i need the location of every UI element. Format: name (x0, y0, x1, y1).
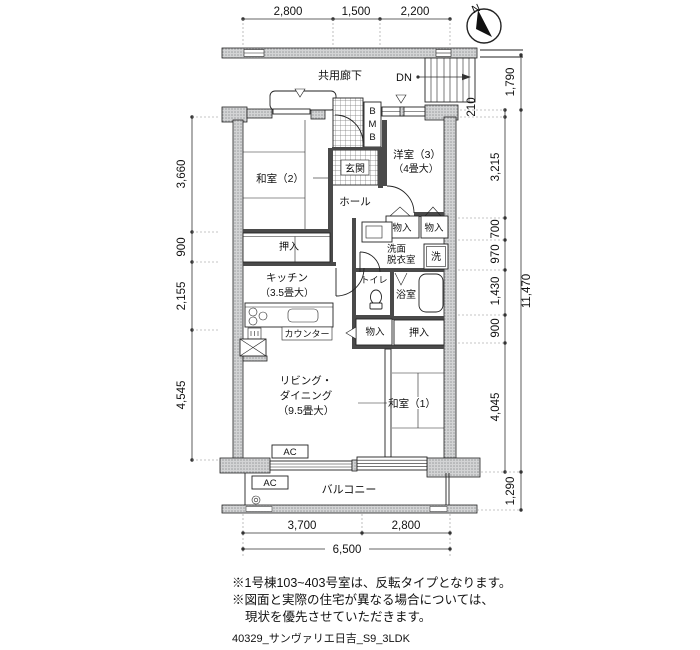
door-arrow-icon (346, 327, 356, 339)
entrance-door (273, 109, 310, 114)
meter-box-letter: B (369, 106, 375, 117)
monoire-a-label: 物入 (392, 222, 412, 234)
washer-label: 洗 (431, 251, 441, 263)
note-line-2: ※図面と実際の住宅が異なる場合については、 (232, 592, 494, 607)
stairs-down-label: DN (396, 72, 412, 84)
yoshitsu3-size-label: （4畳大） (393, 162, 439, 175)
ac1-label: AC (283, 447, 296, 458)
monoire-c-label: 物入 (365, 326, 385, 338)
genkan-label: 玄関 (345, 162, 365, 175)
kitchen-label: キッチン (266, 272, 308, 284)
toilet-icon (371, 290, 382, 304)
meter-box-letter: M (369, 119, 377, 130)
bedroom3-door-swing (387, 186, 414, 213)
monoire-pair: 物入 物入 (386, 207, 448, 238)
dimension-bottom: 3,700 2,800 6,500 (241, 514, 451, 556)
yoshitsu3-room: 洋室（3） （4畳大） (393, 148, 441, 175)
dim-top-1: 2,800 (274, 6, 303, 18)
file-name: 40329_サンヴァリエ日吉_S9_3LDK (232, 631, 411, 645)
living-label-2: ダイニング (280, 389, 333, 402)
yoshitsu3-label: 洋室（3） (393, 148, 441, 161)
floor-plan-drawing: 共用廊下 DN N (0, 0, 700, 650)
dim-right-900: 900 (490, 318, 502, 337)
counter-label: カウンター (284, 329, 329, 339)
oshiire-top-label: 押入 (279, 240, 299, 253)
dim-top-2: 1,500 (342, 6, 371, 18)
bathtub-icon (419, 274, 443, 312)
dim-right-210: 210 (466, 97, 478, 116)
bath-door-fold (395, 273, 407, 285)
entrance: B M B 玄関 (332, 98, 385, 188)
ac2-label: AC (263, 478, 276, 489)
dim-right-1790: 1,790 (505, 68, 517, 97)
common-corridor: 共用廊下 (222, 48, 523, 82)
toilet-room: トイレ (360, 275, 387, 309)
oshiire-right-label: 押入 (409, 326, 429, 339)
dimension-left: 3,660 900 2,155 4,545 (176, 115, 220, 461)
balcony: AC バルコニー (222, 473, 477, 513)
washitsu1-label: 和室（1） (388, 397, 436, 410)
bottom-windows (270, 457, 427, 471)
washitsu2-room: 和室（2） (243, 120, 328, 229)
dim-right-3215: 3,215 (490, 153, 502, 182)
living-label-1: リビング・ (280, 374, 333, 387)
washitsu1-room: 和室（1） (358, 349, 444, 457)
note-line-1: ※1号棟103~403号室は、反転タイプとなります。 (232, 575, 511, 590)
floor-plan-page: 共用廊下 DN N (0, 0, 700, 650)
dim-top-3: 2,200 (401, 6, 430, 18)
dim-right-700: 700 (490, 219, 502, 238)
dimension-right-inner: 210 3,215 700 970 1,430 900 4,045 (458, 97, 507, 473)
corridor-label: 共用廊下 (318, 68, 362, 82)
living-dining: リビング・ ダイニング （9.5畳大） AC (272, 374, 334, 458)
note-line-3: 現状を優先させていただきます。 (245, 610, 431, 624)
senmen-label: 洗面 (387, 243, 406, 255)
dim-left-4: 4,545 (176, 381, 188, 410)
bath-room: 浴室 (395, 273, 443, 312)
dim-right-1290: 1,290 (505, 477, 517, 506)
drain-icon (252, 496, 260, 504)
washitsu2-label: 和室（2） (256, 172, 304, 185)
kitchen-size-label: （3.5畳大） (260, 286, 314, 299)
marker-triangle-icon (396, 95, 406, 103)
dim-left-3: 2,155 (176, 282, 188, 311)
dim-right-1430: 1,430 (490, 277, 502, 306)
lower-closets: 物入 押入 (346, 319, 444, 345)
notes: ※1号棟103~403号室は、反転タイプとなります。 ※図面と実際の住宅が異なる… (232, 575, 511, 645)
dim-bottom-3700: 3,700 (288, 520, 317, 532)
dim-right-970: 970 (490, 244, 502, 263)
dim-left-2: 900 (176, 237, 188, 256)
monoire-b-label: 物入 (424, 222, 444, 234)
entrance-porch (270, 91, 336, 110)
sink-icon (288, 309, 318, 322)
oshiire-top: 押入 (243, 233, 330, 262)
dim-bottom-6500: 6,500 (333, 544, 362, 556)
stairs: DN (396, 58, 475, 102)
kitchen: キッチン （3.5畳大） カウンター (240, 272, 333, 356)
dim-right-11470: 11,470 (521, 274, 533, 308)
dim-bottom-2800: 2,800 (392, 520, 421, 532)
north-compass-icon: N (467, 2, 501, 43)
toilet-label: トイレ (360, 275, 387, 285)
dim-right-4045: 4,045 (490, 393, 502, 422)
dimension-top: 2,800 1,500 2,200 (241, 6, 451, 46)
balcony-label: バルコニー (322, 483, 377, 496)
datsuiishitsu-label: 脱衣室 (387, 254, 416, 266)
dim-left-1: 3,660 (176, 160, 188, 189)
living-size-label: （9.5畳大） (278, 404, 335, 417)
bath-label: 浴室 (396, 288, 416, 301)
meter-box-letter: B (369, 132, 375, 143)
hall-label: ホール (339, 196, 371, 208)
